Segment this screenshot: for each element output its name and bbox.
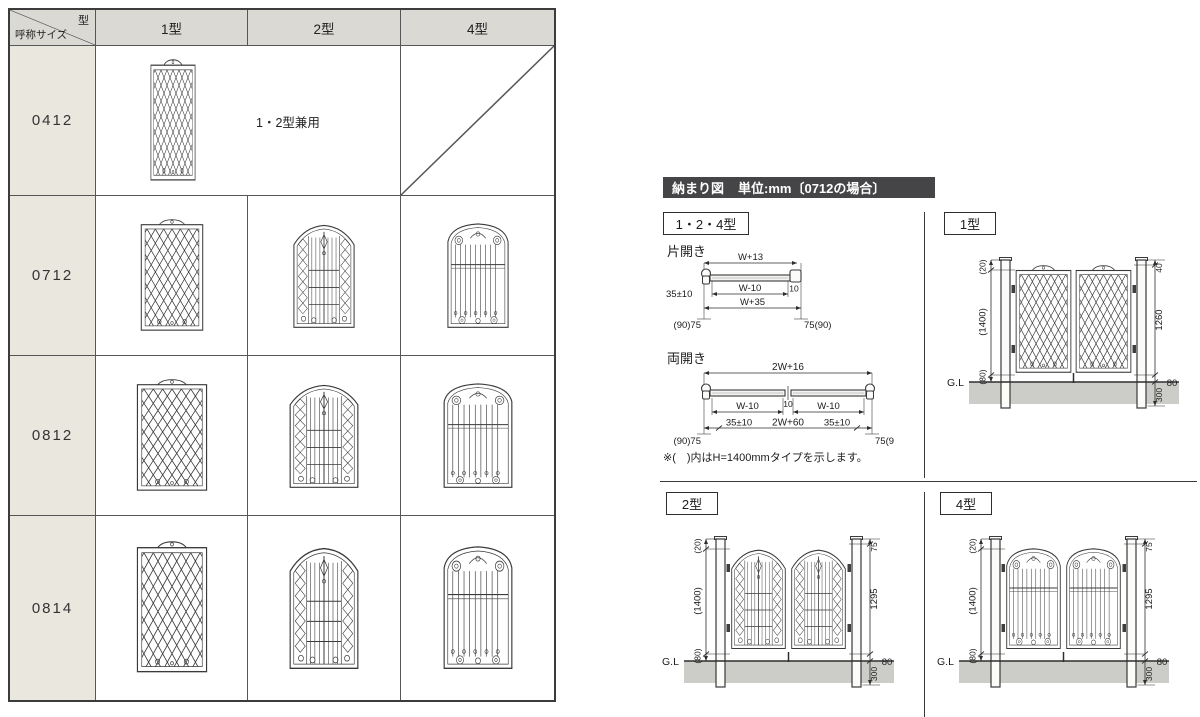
gate-illustration-0812-type2: [288, 379, 360, 493]
cell-0712-type2: [248, 196, 401, 356]
lattice-pattern: [140, 228, 204, 325]
dim-label: (20): [978, 259, 988, 274]
table-corner-cell: 型 呼称サイズ: [10, 10, 96, 46]
gate-post: [716, 539, 725, 687]
section-unit: 単位:mm〔0712の場合〕: [738, 178, 885, 197]
cell-0812-type2: [248, 356, 401, 516]
cell-0812-type4: [401, 356, 554, 516]
post-plan: [790, 270, 801, 282]
type2-box: 2型: [666, 492, 718, 515]
dim-label: W+13: [738, 253, 763, 263]
dim-label: (80): [978, 369, 988, 384]
type1-elevation-diagram: (20)(1400)(80)G.L40126080300: [945, 240, 1195, 425]
vertical-divider-bottom: [924, 492, 925, 717]
gate-illustration-0712-type4: [446, 219, 510, 333]
dim-label: (90)75: [674, 436, 701, 447]
dim-label: 35±10: [726, 418, 752, 429]
group-type-box: 1・2・4型: [663, 212, 749, 235]
hinge: [1012, 285, 1016, 293]
row-label-0814: 0814: [10, 516, 96, 700]
dim-label: 75(90): [875, 436, 894, 447]
gate-panel: [1007, 549, 1061, 649]
dim-label: 10: [783, 399, 793, 409]
lattice-pattern: [150, 70, 196, 175]
dim-label: (1400): [968, 587, 979, 614]
dim-label: 300: [1144, 667, 1154, 681]
gate-illustration-0814-type1: [136, 541, 208, 675]
cell-0712-type4: [401, 196, 554, 356]
hinge: [1002, 624, 1006, 632]
corner-label-type: 型: [78, 12, 89, 28]
type1-box: 1型: [944, 212, 996, 235]
dim-label: 2W+60: [772, 418, 804, 429]
gate-illustration-0814-type4: [442, 541, 514, 675]
hinge: [1002, 564, 1006, 572]
hinge: [848, 624, 852, 632]
type2-elevation-diagram: (20)(1400)(80)G.L75129580300: [660, 519, 910, 704]
cell-0814-type2: [248, 516, 401, 700]
hinge: [727, 564, 731, 572]
dim-label: (80): [693, 648, 703, 663]
hinge: [1123, 624, 1127, 632]
hinge: [848, 564, 852, 572]
cell-0412-type4-empty: [401, 46, 554, 196]
gate-illustration-0412: [150, 59, 196, 183]
dim-label: 80: [1167, 378, 1178, 389]
row-label-0812: 0812: [10, 356, 96, 516]
dim-label: 75: [869, 542, 879, 552]
section-title-bar: 納まり図 単位:mm〔0712の場合〕: [663, 177, 935, 198]
gate-illustration-0712-type2: [292, 219, 356, 333]
gate-post: [1127, 539, 1136, 687]
ground-level-label: G.L: [662, 656, 679, 668]
ground-level-label: G.L: [947, 377, 964, 389]
gate-panel: [732, 550, 786, 648]
cell-0814-type1: [96, 516, 248, 700]
dim-label: 35±10: [666, 289, 692, 300]
hinge: [1133, 285, 1137, 293]
dim-label: 300: [869, 667, 879, 681]
catalog-page: 型 呼称サイズ 1型 2型 4型 0412 1・2型兼用 0712 0812: [0, 0, 1200, 717]
vertical-divider-top: [924, 212, 925, 478]
hinge: [727, 624, 731, 632]
lattice-pattern: [136, 553, 208, 667]
gate-panel: [1067, 549, 1121, 649]
dim-label: 300: [1154, 388, 1164, 402]
dim-label: W-10: [736, 401, 759, 412]
gate-panel: [792, 550, 846, 648]
dim-label: 80: [1157, 657, 1168, 668]
ground-level-label: G.L: [937, 656, 954, 668]
shared-type-note: 1・2型兼用: [256, 112, 320, 131]
column-header-type2: 2型: [248, 10, 401, 46]
dim-label: (20): [968, 538, 978, 553]
dim-label: W-10: [817, 401, 840, 412]
dim-label: 10: [789, 284, 799, 294]
hinge: [1133, 345, 1137, 353]
dim-label: 2W+16: [772, 362, 804, 373]
dim-label: (20): [693, 538, 703, 553]
gate-post: [852, 539, 861, 687]
dim-label: (1400): [693, 587, 704, 614]
column-header-type1: 1型: [96, 10, 248, 46]
type1-box-label: 1型: [960, 214, 980, 233]
h1400-note: ※( )内はH=1400mmタイプを示します。: [663, 449, 868, 465]
dim-label: W-10: [739, 283, 762, 294]
horizontal-divider: [660, 481, 1197, 482]
type4-box: 4型: [940, 492, 992, 515]
dim-label: (1400): [978, 308, 989, 335]
cell-0812-type1: [96, 356, 248, 516]
type4-box-label: 4型: [956, 494, 976, 513]
dim-label: 35±10: [824, 418, 850, 429]
cell-0412-type1-2: 1・2型兼用: [96, 46, 401, 196]
dim-label: (90)75: [674, 320, 701, 331]
dim-label: 1295: [1144, 588, 1155, 609]
gate-post: [991, 539, 1000, 687]
column-header-type4: 4型: [401, 10, 554, 46]
gate-post: [1001, 260, 1010, 408]
cell-0712-type1: [96, 196, 248, 356]
dim-label: (80): [968, 648, 978, 663]
hinge: [1123, 564, 1127, 572]
group-type-label: 1・2・4型: [676, 214, 737, 233]
type2-box-label: 2型: [682, 494, 702, 513]
size-type-table: 型 呼称サイズ 1型 2型 4型 0412 1・2型兼用 0712 0812: [8, 8, 556, 702]
gate-illustration-0812-type4: [442, 379, 514, 493]
hinge: [1012, 345, 1016, 353]
section-title: 納まり図: [672, 178, 724, 197]
gate-illustration-0812-type1: [136, 379, 208, 493]
dim-label: 1260: [1154, 309, 1165, 330]
row-label-0412: 0412: [10, 46, 96, 196]
dim-label: 40: [1154, 263, 1164, 273]
corner-label-size: 呼称サイズ: [15, 27, 67, 42]
type4-elevation-diagram: (20)(1400)(80)G.L75129580300: [935, 519, 1185, 704]
gate-post: [1137, 260, 1146, 408]
cell-0814-type4: [401, 516, 554, 700]
dim-label: 75: [1144, 542, 1154, 552]
dim-label: W+35: [740, 297, 765, 308]
gate-illustration-0712-type1: [140, 219, 204, 333]
lattice-pattern: [136, 388, 208, 485]
row-label-0712: 0712: [10, 196, 96, 356]
dim-label: 80: [882, 657, 893, 668]
dim-label: 75(90): [804, 320, 831, 331]
gate-illustration-0814-type2: [288, 541, 360, 675]
dim-label: 1295: [869, 588, 880, 609]
single-swing-plan-diagram: W+13W-1010W+3535±10(90)7575(90): [664, 253, 834, 338]
h1400-note-text: ※( )内はH=1400mmタイプを示します。: [663, 452, 868, 464]
empty-cell-diagonal: [401, 46, 554, 195]
